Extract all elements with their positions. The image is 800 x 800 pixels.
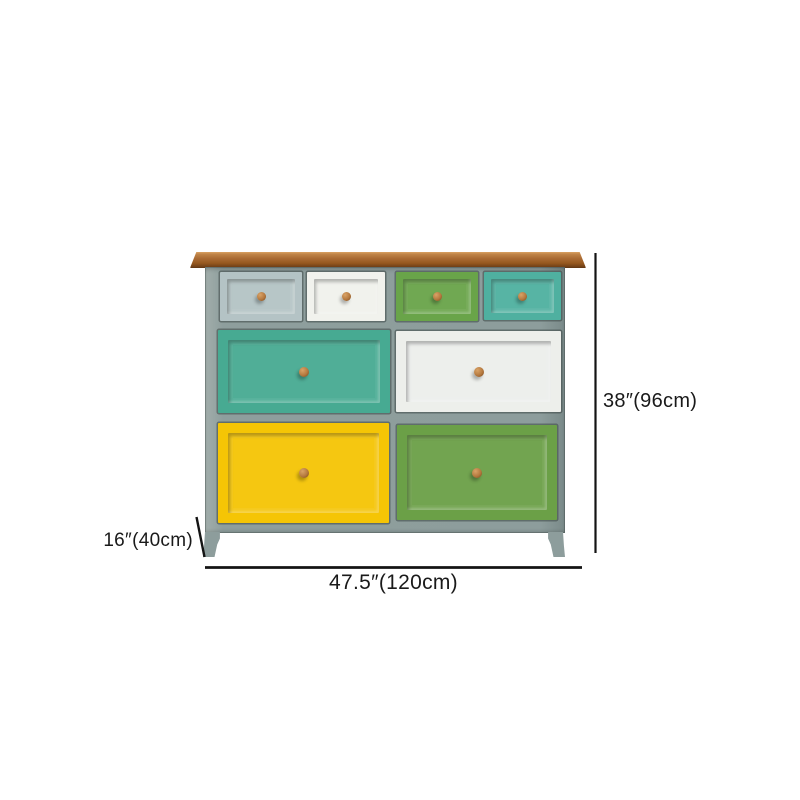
drawer-knob — [257, 292, 266, 301]
cabinet-right-leg — [547, 532, 565, 557]
drawer-knob — [342, 292, 351, 301]
top-row-drawer-3 — [396, 272, 478, 321]
cabinet-left-leg — [203, 532, 221, 557]
drawer-knob — [299, 367, 309, 377]
product-dimension-image: 38″(96cm) 47.5″(120cm) 16″(40cm) — [0, 0, 800, 800]
drawer-knob — [299, 468, 309, 478]
middle-row-drawer-left — [218, 330, 390, 413]
drawer-knob — [472, 468, 482, 478]
bottom-row-drawer-right — [397, 425, 557, 520]
depth-dimension-label: 16″(40cm) — [85, 530, 193, 552]
top-row-drawer-2 — [307, 272, 385, 321]
top-row-drawer-1 — [220, 272, 302, 321]
drawer-knob — [474, 367, 484, 377]
depth-dimension-line — [197, 517, 205, 557]
cabinet-wood-top — [190, 252, 586, 268]
bottom-row-drawer-left — [218, 423, 389, 523]
top-row-drawer-4 — [484, 272, 561, 320]
height-dimension-label: 38″(96cm) — [603, 390, 697, 413]
drawer-knob — [518, 292, 527, 301]
middle-row-drawer-right — [396, 331, 561, 412]
width-dimension-label: 47.5″(120cm) — [205, 571, 582, 595]
drawer-knob — [433, 292, 442, 301]
